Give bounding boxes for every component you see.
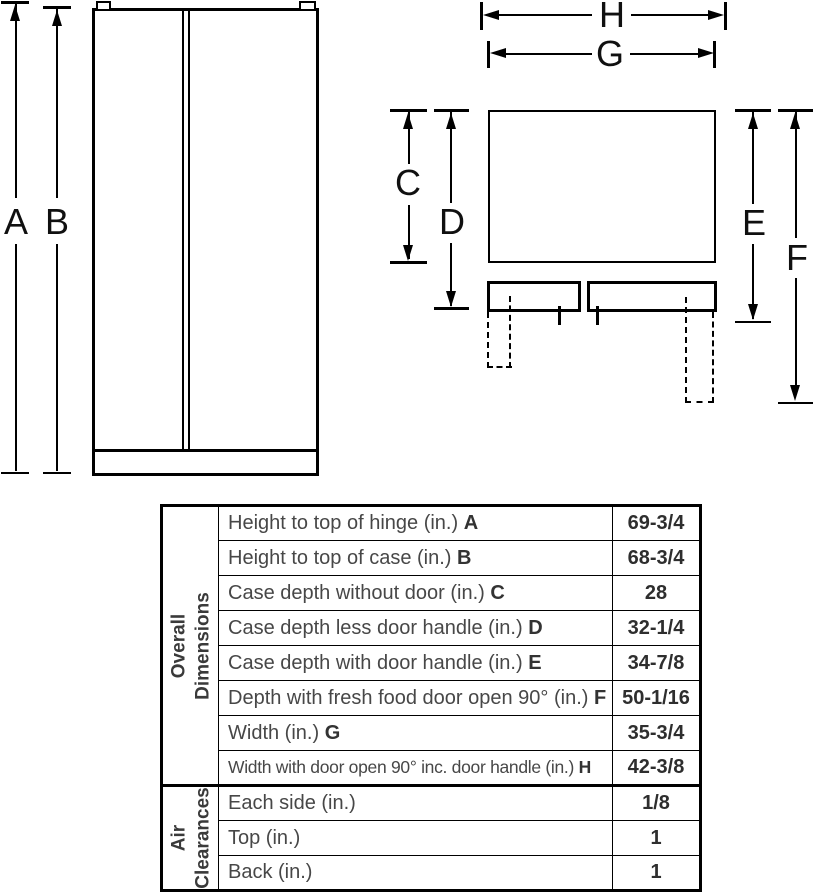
dim-b-arrow-up [52,10,62,26]
fresh-open-dash-inner [685,297,687,403]
fresh-open-dash-bottom [685,401,714,403]
table-row: Overall DimensionsHeight to top of hinge… [162,506,701,541]
row-letter: E [528,652,541,674]
dim-g-line-left [502,53,592,55]
dim-g-line-right [630,53,702,55]
row-label: Width with door open 90° inc. door handl… [219,751,613,786]
row-label: Width (in.) G [219,716,613,751]
refrigerator-spec-sheet: A B H G [0,0,813,895]
row-letter: D [528,617,542,639]
row-value: 68-3/4 [613,541,701,576]
dim-f-arrow-up [790,113,800,129]
dim-f-line-upper [795,112,797,238]
freezer-handle-mark [558,306,561,325]
dim-d-tick-bottom [434,307,469,310]
fridge-hinge-right [299,1,316,9]
section-header-cell: Overall Dimensions [162,506,219,786]
dim-h-arrow-right [708,10,724,20]
dim-c-arrow-up [403,113,413,129]
dim-f-line-lower [795,278,797,391]
dim-a-tick-bottom [1,472,29,475]
row-label: Height to top of case (in.) B [219,541,613,576]
row-value: 69-3/4 [613,506,701,541]
dim-e-arrow-up [748,113,758,129]
row-label: Top (in.) [219,821,613,856]
table-body: Overall DimensionsHeight to top of hinge… [162,506,701,891]
dimensions-table-wrap: Overall DimensionsHeight to top of hinge… [160,504,699,892]
row-value: 1 [613,821,701,856]
row-letter: G [325,722,341,744]
freezer-door-top-view [487,281,581,312]
table-row: Case depth with door handle (in.) E34-7/… [162,646,701,681]
fresh-food-door-top-view [587,281,717,312]
dim-b-line-upper [56,9,58,198]
row-label: Each side (in.) [219,786,613,821]
dim-f-arrow-down [790,385,800,401]
dim-c-arrow-down [403,245,413,261]
dim-a-line-upper [15,4,17,198]
freezer-open-dash-bottom [487,366,512,368]
dim-a-line-lower [15,244,17,471]
table-row: Case depth without door (in.) C28 [162,576,701,611]
row-letter: H [579,757,591,777]
section-header: Air Clearances [167,779,215,895]
row-letter: C [490,582,504,604]
dim-e-arrow-down [748,304,758,320]
fridge-hinge-left [96,1,111,9]
dim-h-tick-right [724,2,727,30]
row-value: 1 [613,856,701,891]
row-value: 28 [613,576,701,611]
row-letter: A [464,512,478,534]
dim-b-line-lower [56,244,58,471]
table-row: Height to top of case (in.) B68-3/4 [162,541,701,576]
dim-c-label: C [390,164,426,202]
row-value: 50-1/16 [613,681,701,716]
dim-h-label: H [594,0,630,34]
dim-d-arrow-down [446,291,456,307]
dim-d-arrow-up [446,113,456,129]
dim-d-label: D [434,203,470,241]
table-row: Back (in.)1 [162,856,701,891]
dim-e-label: E [736,204,772,242]
row-value: 32-1/4 [613,611,701,646]
row-label: Case depth with door handle (in.) E [219,646,613,681]
row-label: Case depth without door (in.) C [219,576,613,611]
fridge-door-gap [182,10,190,450]
table-row: Depth with fresh food door open 90° (in.… [162,681,701,716]
dim-f-tick-bottom [778,402,813,405]
freezer-open-dash-inner [509,296,511,368]
table-row: Top (in.)1 [162,821,701,856]
row-label: Height to top of hinge (in.) A [219,506,613,541]
dim-g-arrow-right [698,48,714,58]
dim-a-arrow-up [10,5,20,21]
dim-a-label: A [0,203,34,241]
dim-h-line-left [495,14,592,16]
row-label: Back (in.) [219,856,613,891]
dim-c-tick-bottom [390,261,427,264]
row-value: 35-3/4 [613,716,701,751]
fridge-kickplate-line [94,449,317,452]
table-row: Case depth less door handle (in.) D32-1/… [162,611,701,646]
section-header: Overall Dimensions [167,587,215,705]
table-row: Width (in.) G35-3/4 [162,716,701,751]
freezer-open-dash-outer [487,312,489,368]
table-row: Air ClearancesEach side (in.)1/8 [162,786,701,821]
section-header-cell: Air Clearances [162,786,219,891]
fresh-open-dash-outer [712,312,714,403]
fridge-body [92,8,319,476]
dim-b-label: B [39,203,75,241]
case-top-view [488,110,716,263]
dim-f-label: F [779,239,813,277]
row-letter: F [594,687,606,709]
dim-g-label: G [592,35,628,73]
table-row: Width with door open 90° inc. door handl… [162,751,701,786]
row-letter: B [457,547,471,569]
row-value: 1/8 [613,786,701,821]
row-label: Depth with fresh food door open 90° (in.… [219,681,613,716]
row-label: Case depth less door handle (in.) D [219,611,613,646]
dimensions-table: Overall DimensionsHeight to top of hinge… [160,504,702,892]
row-value: 34-7/8 [613,646,701,681]
dim-b-tick-bottom [43,472,71,475]
fresh-food-handle-mark [596,306,599,325]
dim-h-line-right [631,14,711,16]
dim-e-tick-bottom [735,321,771,324]
row-value: 42-3/8 [613,751,701,786]
